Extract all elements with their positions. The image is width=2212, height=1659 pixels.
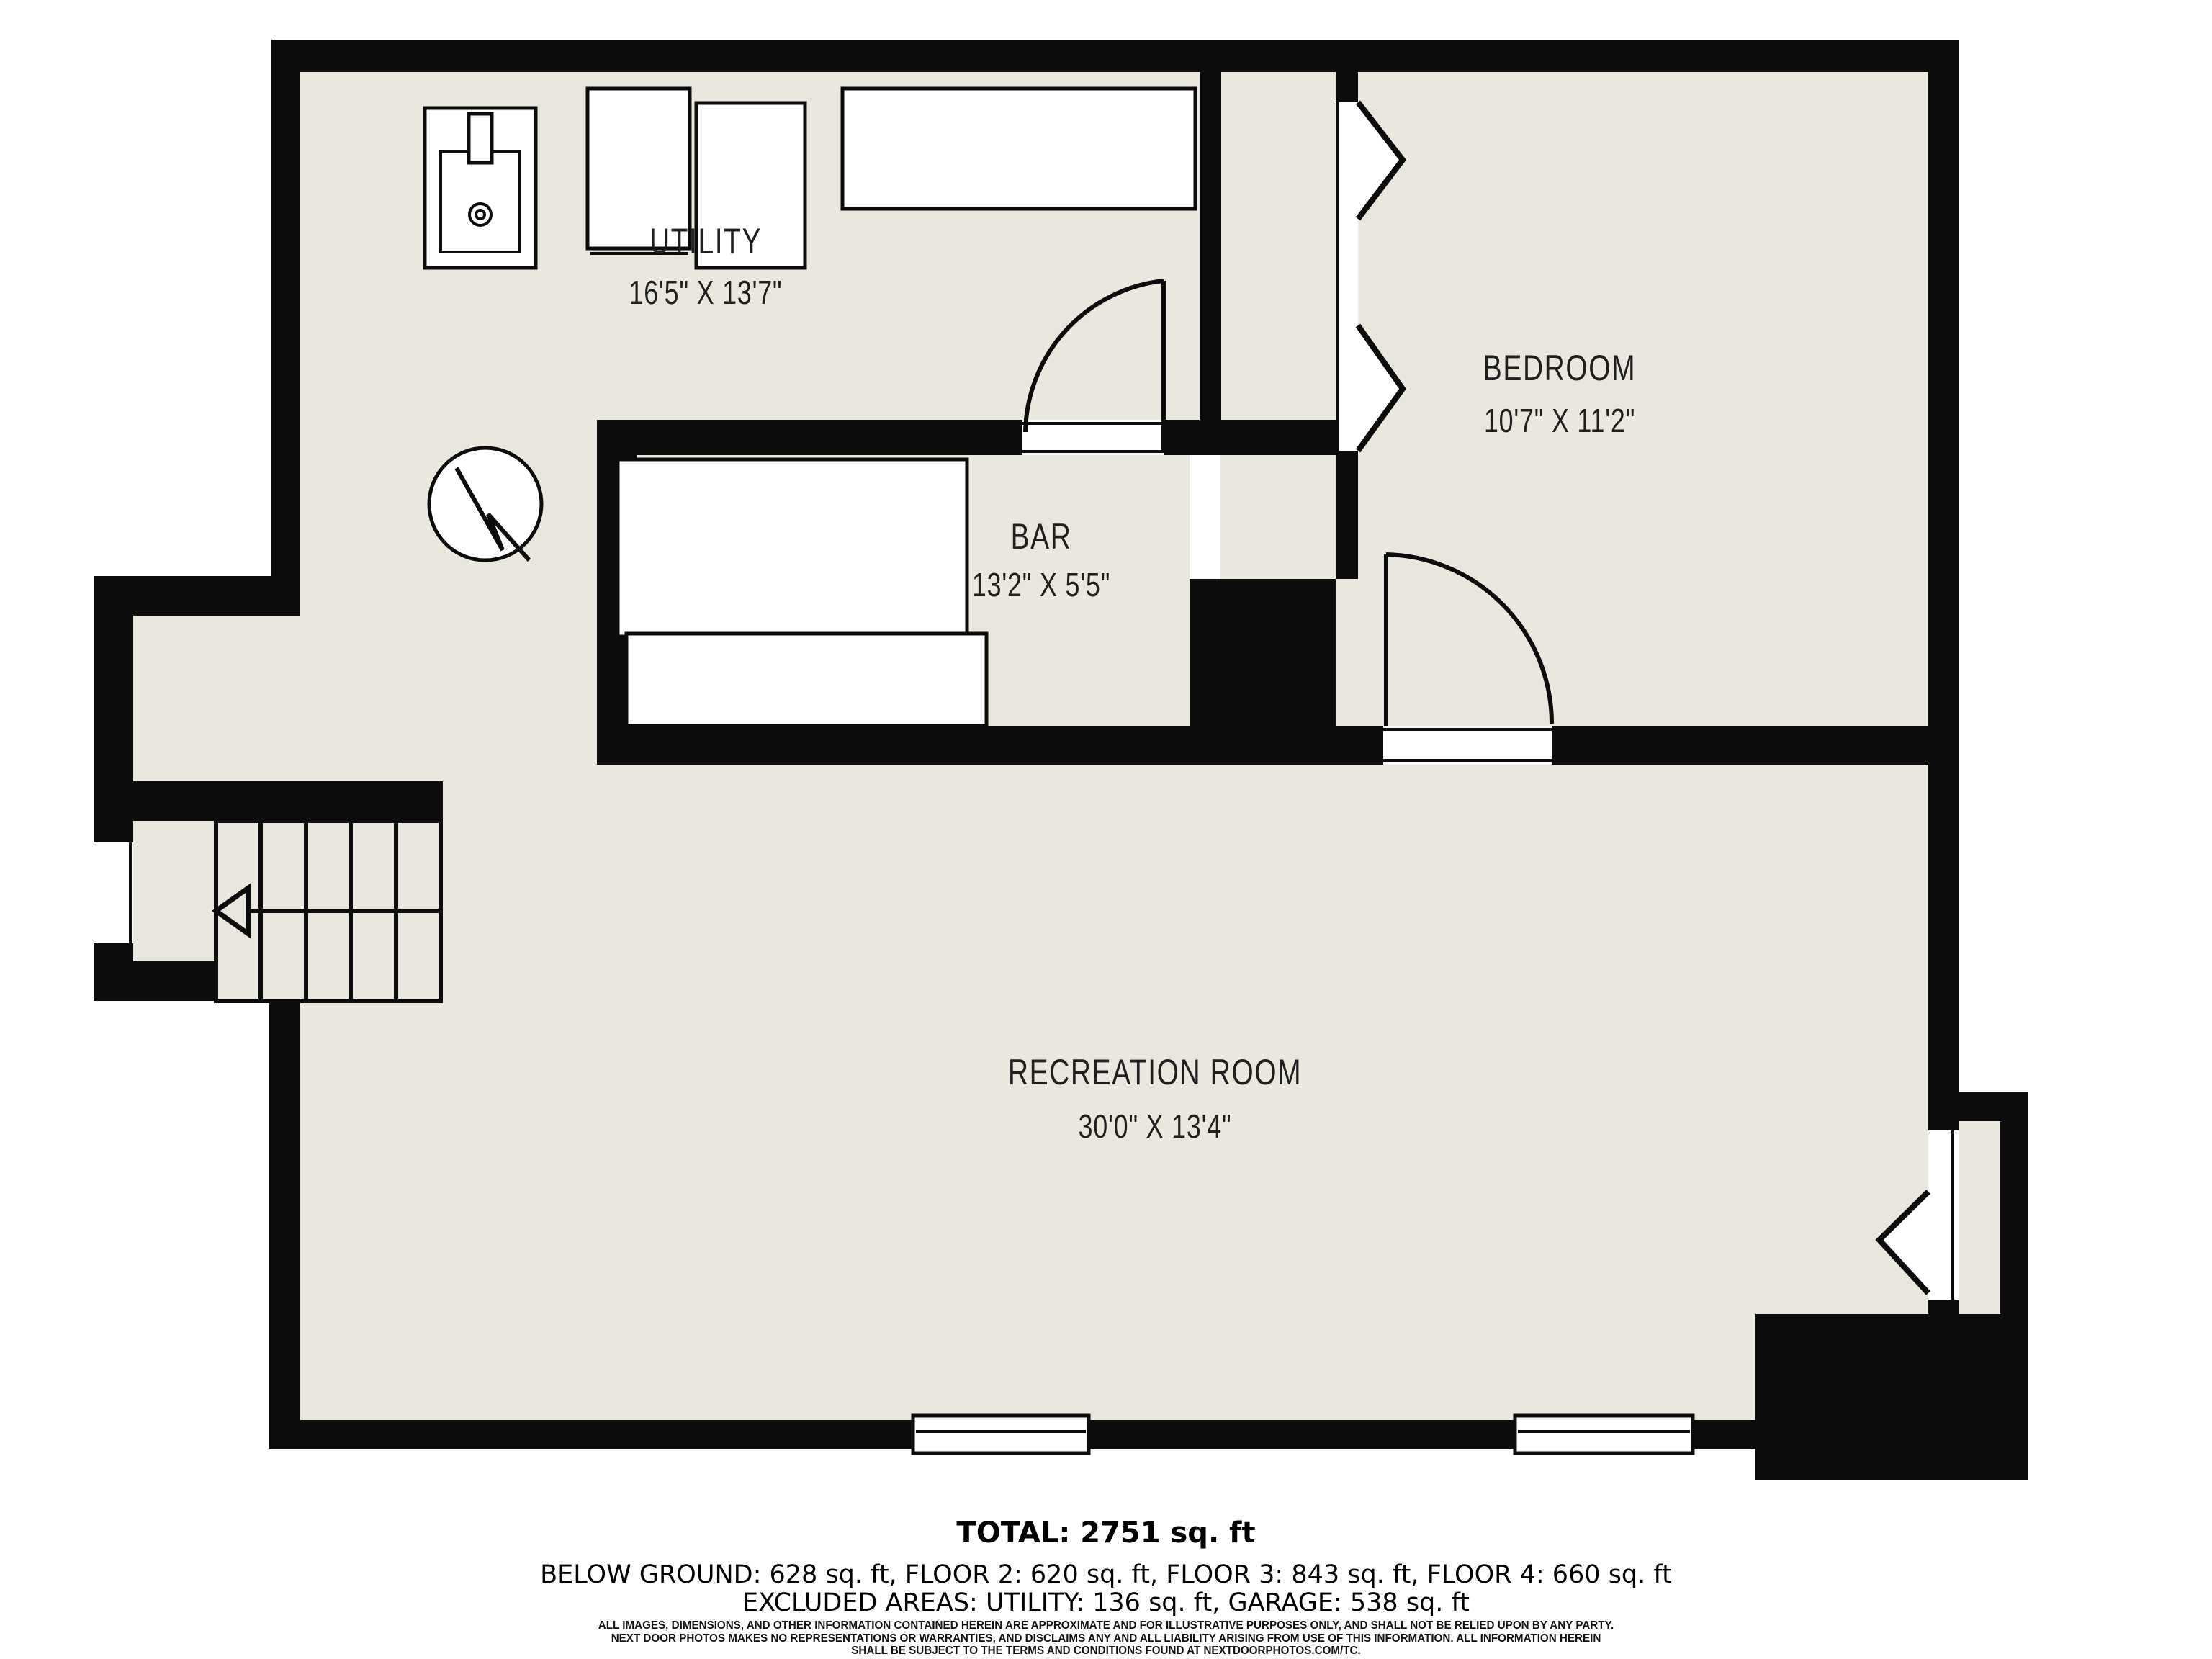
recreation-label: RECREATION ROOM [1008, 1051, 1302, 1092]
window-right [1515, 1416, 1693, 1453]
window-frame [913, 1416, 1089, 1453]
bar-label: BAR [1011, 516, 1072, 557]
sink-faucet [469, 114, 492, 163]
recreation-label-group: RECREATION ROOM [1008, 1051, 1302, 1092]
disclaimer-line2: NEXT DOOR PHOTOS MAKES NO REPRESENTATION… [611, 1632, 1601, 1645]
excluded-area-text: EXCLUDED AREAS: UTILITY: 136 sq. ft, GAR… [742, 1588, 1470, 1617]
utility-label-group: UTILITY [649, 220, 762, 261]
disclaimer-block: ALL IMAGES, DIMENSIONS, AND OTHER INFORM… [598, 1619, 1614, 1657]
disclaimer-line3-group: SHALL BE SUBJECT TO THE TERMS AND CONDIT… [851, 1645, 1360, 1657]
utility-dims: 16'5" X 13'7" [629, 274, 783, 311]
window-left [913, 1416, 1089, 1453]
utility-dims-group: 16'5" X 13'7" [629, 274, 783, 311]
bedroom-label: BEDROOM [1483, 347, 1636, 388]
sink-icon [425, 108, 536, 268]
bedroom-floor [1358, 72, 1928, 726]
bar-label-group: BAR [1011, 516, 1072, 557]
bumpout-floor [1959, 1121, 2000, 1314]
wall-utility-divider [1200, 72, 1221, 455]
wall-bar-north-right [1164, 420, 1356, 455]
wall-south-b [1336, 726, 1383, 765]
bar-dims-group: 13'2" X 5'5" [972, 567, 1110, 603]
wall-bumpout-right [2000, 1092, 2028, 1314]
utility-counter [842, 89, 1195, 209]
wall-closet-lower [1336, 475, 1358, 579]
window-frame [1515, 1416, 1693, 1453]
stairs [216, 821, 441, 1001]
water-heater-icon [429, 448, 541, 560]
summary-block: TOTAL: 2751 sq. ft BELOW GROUND: 628 sq.… [540, 1516, 1672, 1617]
wall-block [1190, 579, 1336, 765]
bedroom-door-threshold [1383, 727, 1552, 763]
stair-window [94, 842, 133, 943]
wall-south-a [637, 726, 1190, 765]
disclaimer-line1: ALL IMAGES, DIMENSIONS, AND OTHER INFORM… [598, 1619, 1614, 1632]
bedroom-dims: 10'7" X 11'2" [1484, 403, 1635, 439]
wall-left-jog [94, 576, 300, 616]
recreation-dims-group: 30'0" X 13'4" [1079, 1108, 1232, 1145]
wall-closet-stub-top [1336, 72, 1358, 102]
wall-top [271, 40, 1959, 72]
bedroom-label-group: BEDROOM [1483, 347, 1636, 388]
disclaimer-line3: SHALL BE SUBJECT TO THE TERMS AND CONDIT… [851, 1645, 1360, 1657]
floors-area-text: BELOW GROUND: 628 sq. ft, FLOOR 2: 620 s… [540, 1560, 1672, 1589]
wall-mass-bottom-right [1755, 1314, 2028, 1480]
wall-bar-north-left [597, 420, 1022, 455]
utility-door-threshold [1022, 421, 1164, 454]
wall-left-lower [269, 961, 300, 1449]
recreation-dims: 30'0" X 13'4" [1079, 1108, 1232, 1145]
water-heater-tank [429, 448, 541, 560]
wall-right-upper [1928, 40, 1959, 1130]
bar-dims: 13'2" X 5'5" [972, 567, 1110, 603]
bedroom-dims-group: 10'7" X 11'2" [1484, 403, 1635, 439]
bar-counter-lower [626, 634, 986, 726]
wall-stairs-top [133, 781, 443, 821]
closet-door-track [1338, 102, 1357, 451]
bar-counter-upper [618, 459, 967, 637]
wall-south-c [1552, 726, 1928, 765]
floor-plan-page: UTILITY 16'5" X 13'7" BAR 13'2" X 5'5" B… [0, 0, 2212, 1659]
utility-label: UTILITY [649, 220, 762, 261]
total-area-text: TOTAL: 2751 sq. ft [956, 1516, 1255, 1550]
floor-plan-canvas: UTILITY 16'5" X 13'7" BAR 13'2" X 5'5" B… [0, 0, 2212, 1659]
wall-left-upper [271, 40, 300, 576]
disclaimer-line2-group: NEXT DOOR PHOTOS MAKES NO REPRESENTATION… [611, 1632, 1601, 1645]
wall-left-mid [94, 616, 133, 842]
disclaimer-line1-group: ALL IMAGES, DIMENSIONS, AND OTHER INFORM… [598, 1619, 1614, 1632]
wall-closet-stub-bottom [1336, 451, 1358, 475]
